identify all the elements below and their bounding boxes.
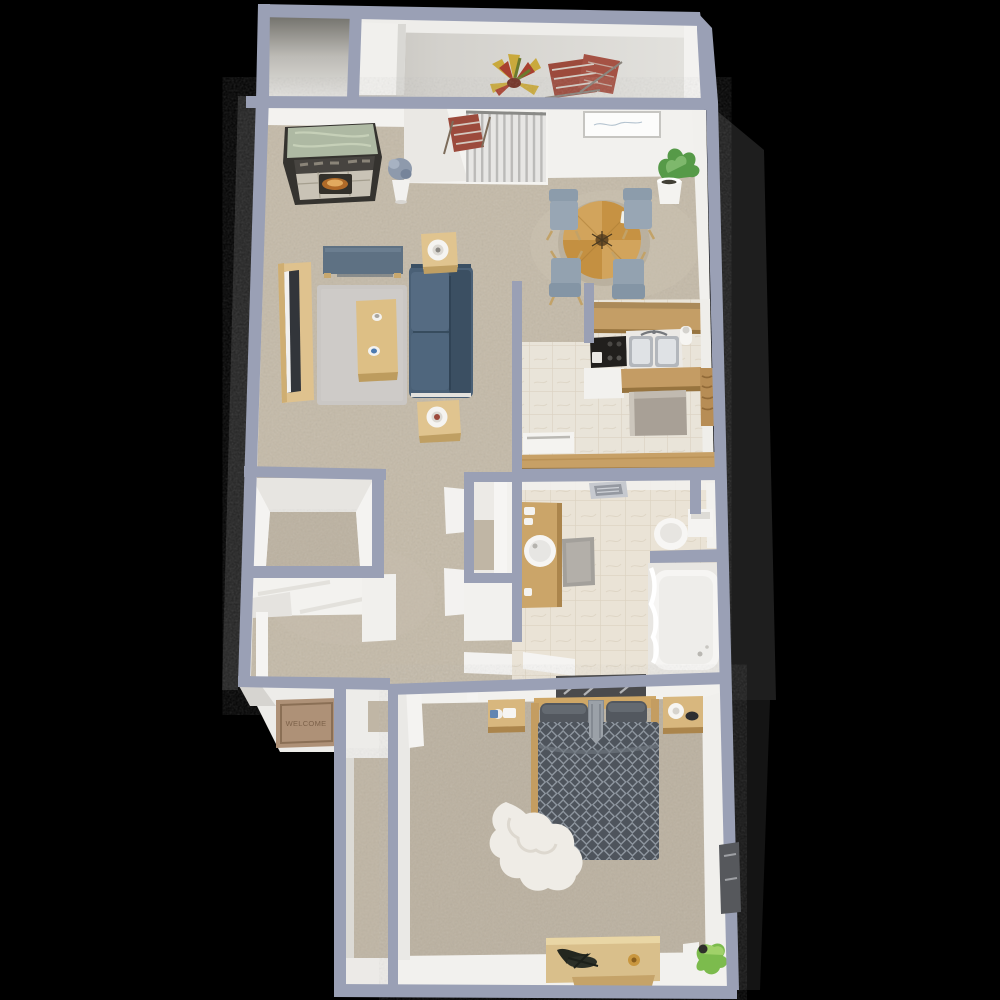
svg-text:WELCOME: WELCOME <box>286 719 327 728</box>
